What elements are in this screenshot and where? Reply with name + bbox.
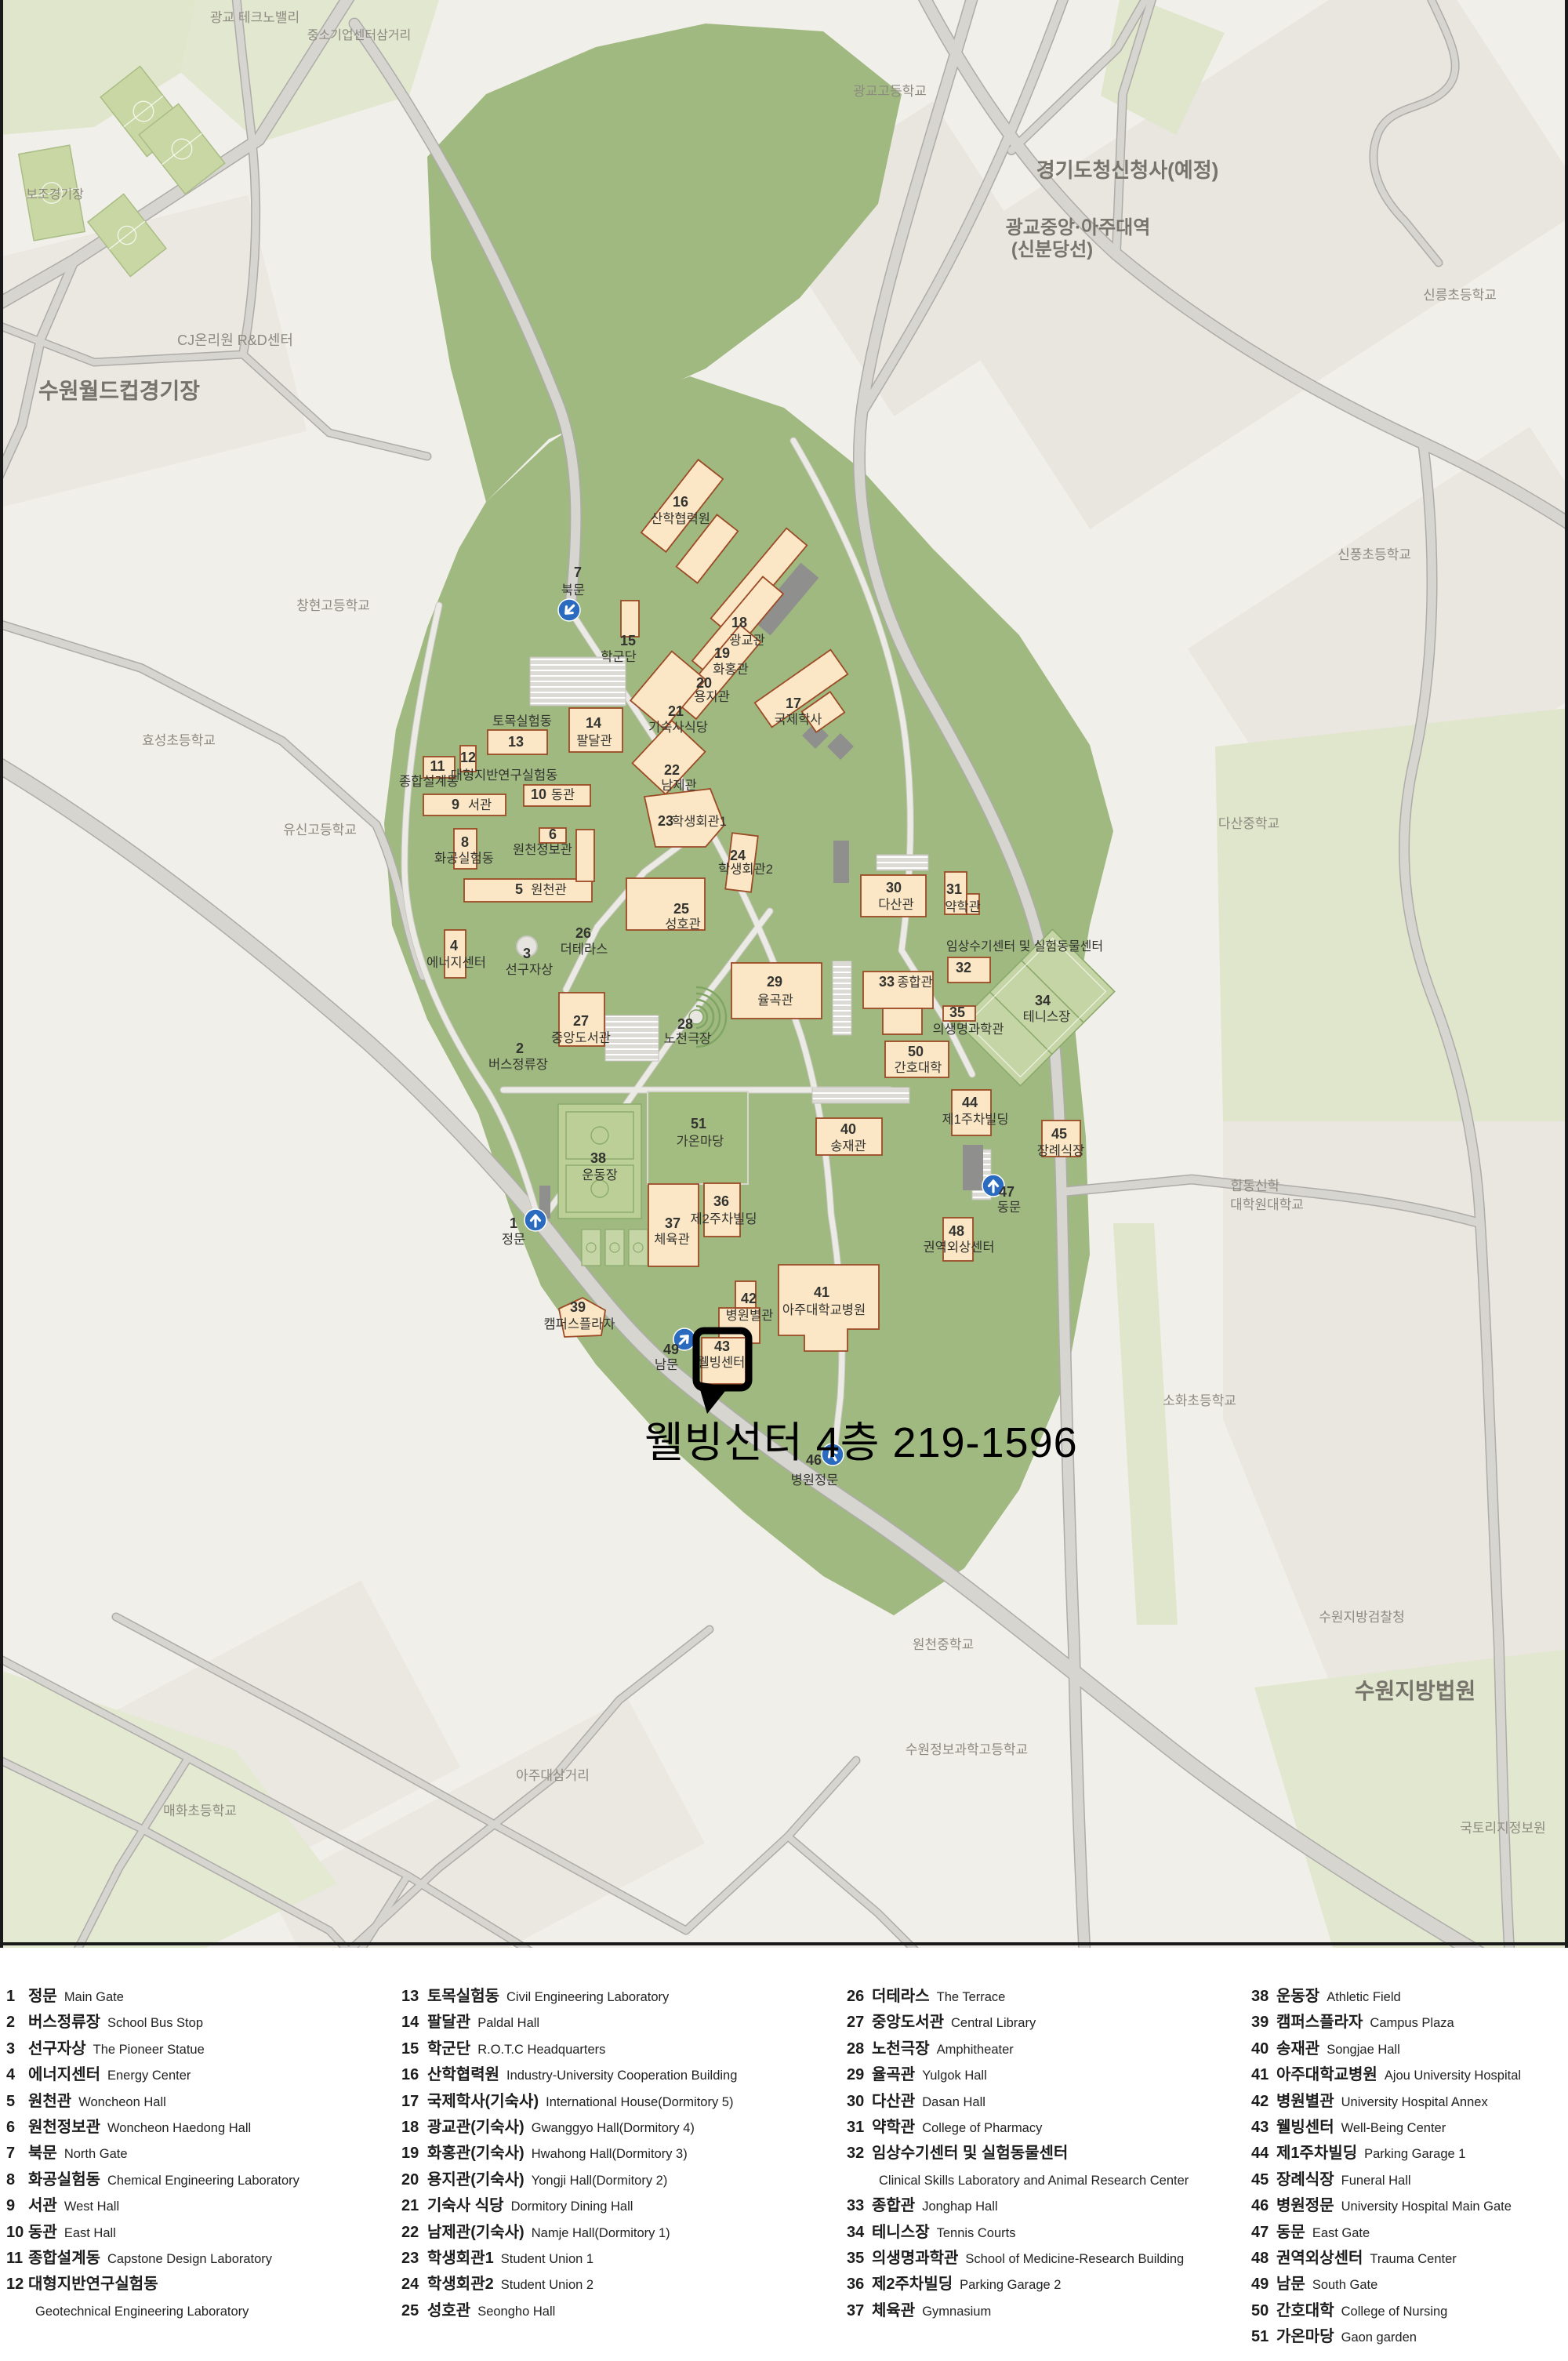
building-name-label: 팔달관 [576, 733, 612, 748]
building-name-label: 대형지반연구실험동 [451, 768, 558, 783]
legend-item-1: 1정문Main Gate [6, 1984, 299, 2010]
legend-item-5: 5원천관Woncheon Hall [6, 2089, 299, 2115]
building-5 [576, 830, 594, 881]
building-number-label: 18 [731, 615, 747, 630]
building-name-label: 동관 [551, 787, 575, 802]
legend-korean-name: 제1주차빌딩 [1276, 2145, 1357, 2162]
legend-korean-name: 동문 [1276, 2224, 1305, 2241]
legend-korean-name: 약학관 [872, 2119, 915, 2136]
area-label: 수원지방법원 [1355, 1679, 1476, 1703]
building-name-label: 기숙사식당 [648, 720, 708, 735]
building-number-label: 51 [691, 1116, 706, 1131]
legend-korean-name: 아주대학교병원 [1276, 2066, 1377, 2083]
legend-korean-name: 기숙사 식당 [427, 2197, 504, 2214]
legend-item-25: 25성호관Seongho Hall [401, 2298, 737, 2324]
area-label: 아주대삼거리 [516, 1768, 590, 1783]
area-label: 효성초등학교 [142, 733, 216, 748]
area-label: 국토리지정보원 [1460, 1821, 1545, 1836]
building-name-label: 율곡관 [757, 993, 793, 1008]
legend-item-18: 18광교관(기숙사)Gwanggyo Hall(Dormitory 4) [401, 2115, 737, 2141]
legend-number: 42 [1251, 2089, 1276, 2115]
map-border-bottom [0, 1942, 1568, 1945]
legend-item-21: 21기숙사 식당Dormitory Dining Hall [401, 2193, 737, 2219]
legend-item-45: 45장례식장Funeral Hall [1251, 2167, 1521, 2193]
basketball-court [629, 1230, 648, 1266]
legend-korean-name: 성호관 [427, 2302, 470, 2319]
legend-english-name: East Hall [64, 2226, 116, 2240]
building-number-label: 45 [1051, 1126, 1067, 1142]
legend-number: 46 [1251, 2193, 1276, 2219]
legend-item-35: 35의생명과학관School of Medicine-Research Buil… [847, 2246, 1189, 2272]
parking-lot [833, 961, 851, 1035]
legend-korean-name: 율곡관 [872, 2066, 915, 2083]
legend-korean-name: 병원별관 [1276, 2093, 1334, 2110]
building-number-label: 26 [575, 925, 591, 941]
area-label: (신분당선) [1011, 239, 1093, 260]
legend-number: 26 [847, 1984, 872, 2010]
legend-item-11: 11종합설계동Capstone Design Laboratory [6, 2246, 299, 2272]
legend-english-name: Namje Hall(Dormitory 1) [532, 2226, 670, 2240]
building-number-label: 17 [786, 696, 801, 711]
legend-english-name: Parking Garage 2 [960, 2278, 1061, 2292]
legend-item-39: 39캠퍼스플라자Campus Plaza [1251, 2010, 1521, 2036]
building-name-label: 노천극장 [664, 1031, 712, 1046]
legend-item-32: 32임상수기센터 및 실험동물센터 [847, 2141, 1189, 2167]
legend-english-name: Energy Center [107, 2069, 191, 2083]
building-number-label: 49 [663, 1342, 679, 1357]
legend-item-8: 8화공실험동Chemical Engineering Laboratory [6, 2167, 299, 2193]
legend-english-name: Main Gate [64, 1990, 124, 2004]
area-label: 다산중학교 [1218, 816, 1279, 831]
building-number-label: 1 [510, 1215, 517, 1231]
legend-english-name: Yongji Hall(Dormitory 2) [532, 2174, 668, 2188]
building-name-label: 장례식장 [1037, 1143, 1085, 1158]
legend-number: 29 [847, 2062, 872, 2088]
legend-english-name: Songjae Hall [1327, 2043, 1400, 2057]
building-33 [883, 1008, 922, 1034]
legend-item-20: 20용지관(기숙사)Yongji Hall(Dormitory 2) [401, 2167, 737, 2193]
building-number-label: 13 [508, 734, 524, 750]
legend-korean-name: 에너지센터 [28, 2066, 100, 2083]
campus-map-page: { "annotation": { "callout_text": "웰빙선터 … [0, 0, 1568, 2361]
legend-english-name: Dormitory Dining Hall [511, 2199, 633, 2214]
area-label: 소화초등학교 [1163, 1393, 1236, 1408]
legend-number: 27 [847, 2010, 872, 2036]
legend-item-28: 28노천극장Amphitheater [847, 2036, 1189, 2062]
legend-item-15: 15학군단R.O.T.C Headquarters [401, 2036, 737, 2062]
legend-english-name: Student Union 1 [501, 2252, 593, 2266]
legend-number: 32 [847, 2141, 872, 2167]
legend-item-wrap: Geotechnical Engineering Laboratory [6, 2298, 299, 2324]
legend-item-22: 22남제관(기숙사)Namje Hall(Dormitory 1) [401, 2220, 737, 2246]
parking-lot [812, 1088, 909, 1103]
legend-item-2: 2버스정류장School Bus Stop [6, 2010, 299, 2036]
area-label: 경기도청신청사(예정) [1036, 158, 1219, 182]
legend-english-name: Athletic Field [1327, 1990, 1400, 2004]
building-name-label: 병원별관 [726, 1308, 774, 1323]
building-name-label: 용지관 [694, 689, 730, 704]
building-number-label: 32 [956, 960, 971, 975]
building-name-label: 운동장 [582, 1168, 618, 1182]
building-name-label: 남문 [655, 1357, 678, 1372]
building-name-label: 원천관 [531, 882, 567, 897]
legend-number: 43 [1251, 2115, 1276, 2141]
legend-english-name: The Pioneer Statue [93, 2043, 205, 2057]
legend-column-1: 1정문Main Gate2버스정류장School Bus Stop3선구자상Th… [6, 1984, 299, 2324]
legend-item-4: 4에너지센터Energy Center [6, 2062, 299, 2088]
building-number-label: 7 [574, 565, 582, 580]
legend-english-name: Trauma Center [1370, 2252, 1456, 2266]
legend-item-3: 3선구자상The Pioneer Statue [6, 2036, 299, 2062]
legend-number: 18 [401, 2115, 427, 2141]
legend-item-50: 50간호대학College of Nursing [1251, 2298, 1521, 2324]
legend-item-27: 27중앙도서관Central Library [847, 2010, 1189, 2036]
building-number-label: 35 [949, 1004, 965, 1020]
legend-korean-name: 캠퍼스플라자 [1276, 2014, 1363, 2031]
building-name-label: 학생회관2 [718, 862, 773, 877]
building-number-label: 3 [523, 946, 531, 961]
legend-korean-name: 학생회관1 [427, 2250, 494, 2267]
legend-item-47: 47동문East Gate [1251, 2220, 1521, 2246]
area-label: 임상수기센터 및 실험동물센터 [946, 939, 1103, 953]
building-name-label: 가온마당 [677, 1134, 724, 1149]
legend-korean-name: 중앙도서관 [872, 2014, 944, 2031]
gray-building [833, 841, 849, 883]
legend-item-40: 40송재관Songjae Hall [1251, 2036, 1521, 2062]
building-name-label: 남제관 [661, 778, 697, 793]
legend-number: 3 [6, 2036, 28, 2062]
legend-item-wrap: Clinical Skills Laboratory and Animal Re… [847, 2167, 1189, 2193]
legend-item-41: 41아주대학교병원Ajou University Hospital [1251, 2062, 1521, 2088]
area-label: 합동신학 [1231, 1179, 1280, 1193]
area-label: 창현고등학교 [296, 598, 370, 613]
legend-number: 33 [847, 2193, 872, 2219]
legend-number: 23 [401, 2246, 427, 2272]
building-name-label: 정문 [502, 1232, 525, 1247]
building-name-label: 서관 [468, 797, 492, 812]
legend-english-name: Ajou University Hospital [1385, 2069, 1521, 2083]
legend-item-17: 17국제학사(기숙사)International House(Dormitory… [401, 2089, 737, 2115]
building-name-label: 학생회관1 [672, 814, 727, 829]
legend-number: 31 [847, 2115, 872, 2141]
building-number-label: 29 [767, 974, 782, 990]
building-number-label: 5 [515, 881, 523, 897]
legend-korean-name: 종합관 [872, 2197, 915, 2214]
area-label: 매화초등학교 [163, 1803, 237, 1818]
legend-item-19: 19화홍관(기숙사)Hwahong Hall(Dormitory 3) [401, 2141, 737, 2167]
legend-number: 1 [6, 1984, 28, 2010]
legend-item-26: 26더테라스The Terrace [847, 1984, 1189, 2010]
legend-number: 4 [6, 2062, 28, 2088]
legend-item-13: 13토목실험동Civil Engineering Laboratory [401, 1984, 737, 2010]
building-number-label: 36 [713, 1193, 729, 1209]
legend-number: 2 [6, 2010, 28, 2036]
legend-number: 19 [401, 2141, 427, 2167]
basketball-court [605, 1230, 624, 1266]
area-label: 광교 테크노밸리 [210, 10, 299, 25]
legend-number: 45 [1251, 2167, 1276, 2193]
building-number-label: 41 [814, 1284, 829, 1300]
building-number-label: 42 [741, 1291, 757, 1306]
legend-korean-name: 장례식장 [1276, 2171, 1334, 2188]
legend-number: 12 [6, 2272, 28, 2297]
legend-english-name: Funeral Hall [1341, 2174, 1411, 2188]
map-border-left [0, 0, 3, 1948]
legend-number: 40 [1251, 2036, 1276, 2062]
building-name-label: 화홍관 [713, 662, 749, 677]
legend-english-name: West Hall [64, 2199, 119, 2214]
legend-korean-name: 버스정류장 [28, 2014, 100, 2031]
legend-number: 9 [6, 2193, 28, 2219]
legend-number: 44 [1251, 2141, 1276, 2167]
building-number-label: 22 [664, 762, 680, 778]
legend-number: 38 [1251, 1984, 1276, 2010]
gate-icon-main-gate [524, 1209, 546, 1231]
building-number-label: 11 [430, 758, 445, 774]
legend-number: 22 [401, 2220, 427, 2246]
legend-number: 14 [401, 2010, 427, 2036]
building-number-label: 4 [450, 938, 458, 953]
legend-item-46: 46병원정문University Hospital Main Gate [1251, 2193, 1521, 2219]
legend-number: 6 [6, 2115, 28, 2141]
legend-number: 10 [6, 2220, 28, 2246]
area-label: 수원지방검찰청 [1319, 1610, 1404, 1625]
legend-number: 47 [1251, 2220, 1276, 2246]
legend-number: 41 [1251, 2062, 1276, 2088]
building-number-label: 24 [730, 848, 746, 863]
legend-number: 8 [6, 2167, 28, 2193]
building-number-label: 9 [452, 797, 459, 812]
legend-english-name: Jonghap Hall [922, 2199, 997, 2214]
legend-number: 24 [401, 2272, 427, 2297]
legend-number: 30 [847, 2089, 872, 2115]
building-name-label: 권역외상센터 [923, 1240, 994, 1255]
gate-icon-north-gate [558, 599, 580, 621]
map-patch [1215, 707, 1568, 1121]
building-number-label: 48 [949, 1223, 964, 1239]
legend-english-name: South Gate [1312, 2278, 1377, 2292]
building-name-label: 더테라스 [561, 942, 608, 957]
legend-english-name: School Bus Stop [107, 2016, 203, 2030]
building-36 [704, 1183, 740, 1237]
campus-map-svg: 16산학협력원7북문15학군단18광교관19화홍관20용지관21기숙사식당22남… [0, 0, 1568, 1948]
building-name-label: 선구자상 [506, 962, 554, 977]
legend-number: 35 [847, 2246, 872, 2272]
building-number-label: 47 [999, 1184, 1014, 1200]
building-name-label: 종합설계동 [399, 774, 459, 789]
legend-english-name: University Hospital Annex [1341, 2095, 1488, 2109]
parking-lot [530, 657, 626, 706]
building-name-label: 에너지센터 [426, 955, 486, 970]
legend-item-6: 6원천정보관Woncheon Haedong Hall [6, 2115, 299, 2141]
legend-item-34: 34테니스장Tennis Courts [847, 2220, 1189, 2246]
legend-korean-name: 남문 [1276, 2276, 1305, 2293]
map-border-right [1565, 0, 1568, 1948]
building-number-label: 28 [677, 1016, 693, 1032]
parking-lot [605, 1015, 659, 1061]
legend-english-name: College of Pharmacy [922, 2121, 1042, 2135]
building-number-label: 43 [714, 1339, 730, 1354]
legend-english-name: Central Library [951, 2016, 1036, 2030]
building-name-label: 의생명과학관 [932, 1022, 1004, 1037]
building-name-label: 다산관 [878, 897, 914, 912]
legend-english-name: Tennis Courts [937, 2226, 1016, 2240]
building-number-label: 10 [531, 786, 546, 802]
building-name-label: 성호관 [665, 917, 701, 932]
legend-korean-name: 팔달관 [427, 2014, 470, 2031]
building-name-label: 국제학사 [775, 712, 822, 727]
legend-number: 13 [401, 1984, 427, 2010]
legend-number: 21 [401, 2193, 427, 2219]
legend-korean-name: 대형지반연구실험동 [28, 2276, 158, 2293]
legend-number: 50 [1251, 2298, 1276, 2324]
legend-korean-name: 권역외상센터 [1276, 2250, 1363, 2267]
building-name-label: 제2주차빌딩 [690, 1211, 757, 1226]
legend-number: 25 [401, 2298, 427, 2324]
legend-number: 34 [847, 2220, 872, 2246]
building-name-label: 광교관 [729, 633, 765, 648]
legend-number: 16 [401, 2062, 427, 2088]
building-number-label: 33 [879, 974, 895, 990]
area-label: 광교고등학교 [853, 84, 927, 99]
legend-english-name: University Hospital Main Gate [1341, 2199, 1512, 2214]
legend-item-31: 31약학관College of Pharmacy [847, 2115, 1189, 2141]
legend-english-name: Woncheon Haedong Hall [107, 2121, 251, 2135]
parking-lot [877, 855, 928, 870]
legend-korean-name: 원천정보관 [28, 2119, 100, 2136]
legend-item-14: 14팔달관Paldal Hall [401, 2010, 737, 2036]
legend-english-name: College of Nursing [1341, 2305, 1448, 2319]
building-number-label: 34 [1035, 993, 1051, 1008]
building-number-label: 37 [665, 1215, 681, 1231]
legend-item-33: 33종합관Jonghap Hall [847, 2193, 1189, 2219]
legend-korean-name: 남제관(기숙사) [427, 2224, 524, 2241]
legend-english-name: International House(Dormitory 5) [546, 2095, 733, 2109]
building-name-label: 산학협력원 [651, 511, 710, 526]
legend-korean-name: 병원정문 [1276, 2197, 1334, 2214]
legend-english-name: The Terrace [937, 1990, 1006, 2004]
legend-korean-name: 국제학사(기숙사) [427, 2093, 539, 2110]
legend-number: 49 [1251, 2272, 1276, 2297]
legend-english-name: School of Medicine-Research Building [965, 2252, 1184, 2266]
building-number-label: 16 [673, 494, 688, 510]
legend-english-name: Gaon garden [1341, 2330, 1417, 2345]
building-name-label: 송재관 [830, 1139, 866, 1153]
legend-column-3: 26더테라스The Terrace27중앙도서관Central Library2… [847, 1984, 1189, 2324]
building-number-label: 38 [590, 1150, 606, 1166]
building-name-label: 중앙도서관 [551, 1030, 611, 1045]
building-number-label: 30 [886, 880, 902, 895]
area-label: 원천중학교 [913, 1637, 974, 1652]
legend-item-7: 7북문North Gate [6, 2141, 299, 2167]
legend-item-49: 49남문South Gate [1251, 2272, 1521, 2297]
map-canvas: 16산학협력원7북문15학군단18광교관19화홍관20용지관21기숙사식당22남… [0, 0, 1568, 1948]
legend-english-name: Yulgok Hall [922, 2069, 987, 2083]
legend-item-43: 43웰빙센터Well-Being Center [1251, 2115, 1521, 2141]
legend-item-48: 48권역외상센터Trauma Center [1251, 2246, 1521, 2272]
legend-english-name: Parking Garage 1 [1364, 2147, 1465, 2161]
building-number-label: 20 [696, 675, 712, 691]
building-name-label: 종합관 [897, 975, 933, 990]
building-5 [464, 879, 592, 902]
legend-item-9: 9서관West Hall [6, 2193, 299, 2219]
legend-korean-name: 정문 [28, 1988, 57, 2005]
annotation-text: 웰빙선터 4층 219-1596 [644, 1419, 1078, 1466]
building-name-label: 화공실험동 [434, 851, 494, 866]
area-label: CJ온리원 R&D센터 [177, 332, 293, 348]
legend-item-42: 42병원별관University Hospital Annex [1251, 2089, 1521, 2115]
legend-korean-name: 더테라스 [872, 1988, 930, 2005]
legend-item-38: 38운동장Athletic Field [1251, 1984, 1521, 2010]
legend-english-name: Well-Being Center [1341, 2121, 1446, 2135]
building-number-label: 15 [620, 633, 636, 648]
legend-item-12: 12대형지반연구실험동 [6, 2272, 299, 2297]
building-number-label: 40 [840, 1121, 856, 1137]
legend-item-30: 30다산관Dasan Hall [847, 2089, 1189, 2115]
building-number-label: 8 [461, 834, 469, 850]
area-label: 신릉초등학교 [1423, 288, 1497, 303]
legend-item-10: 10동관East Hall [6, 2220, 299, 2246]
area-label: 수원월드컵경기장 [38, 379, 200, 403]
legend-korean-name: 송재관 [1276, 2040, 1319, 2058]
building-number-label: 39 [570, 1299, 586, 1315]
legend-english-name: R.O.T.C Headquarters [477, 2043, 605, 2057]
gray-building [963, 1145, 983, 1190]
legend-number: 20 [401, 2167, 427, 2193]
legend-english-name: Civil Engineering Laboratory [506, 1990, 669, 2004]
legend-english-name: Gymnasium [922, 2305, 991, 2319]
legend-number: 7 [6, 2141, 28, 2167]
legend-item-29: 29율곡관Yulgok Hall [847, 2062, 1189, 2088]
building-name-label: 웰빙센터 [698, 1355, 746, 1370]
legend-english-name: Gwanggyo Hall(Dormitory 4) [532, 2121, 695, 2135]
legend-korean-name: 광교관(기숙사) [427, 2119, 524, 2136]
legend-korean-name: 제2주차빌딩 [872, 2276, 953, 2293]
building-number-label: 2 [516, 1041, 524, 1056]
building-number-label: 12 [460, 750, 476, 765]
building-15 [621, 601, 639, 637]
building-name-label: 제1주차빌딩 [942, 1112, 1008, 1127]
legend-item-24: 24학생회관2Student Union 2 [401, 2272, 737, 2297]
legend-english-name: Student Union 2 [501, 2278, 593, 2292]
legend-korean-name: 북문 [28, 2145, 57, 2162]
legend-number: 36 [847, 2272, 872, 2297]
building-number-label: 14 [586, 715, 601, 731]
building-name-label: 아주대학교병원 [782, 1302, 866, 1317]
building-29 [731, 963, 822, 1019]
legend-korean-name: 운동장 [1276, 1988, 1319, 2005]
legend-korean-name: 다산관 [872, 2093, 915, 2110]
building-number-label: 50 [908, 1044, 924, 1059]
legend-korean-name: 선구자상 [28, 2040, 86, 2058]
legend-number: 39 [1251, 2010, 1276, 2036]
legend-number: 37 [847, 2298, 872, 2324]
legend-korean-name: 학생회관2 [427, 2276, 494, 2293]
legend-korean-name: 원천관 [28, 2093, 71, 2110]
building-number-label: 21 [668, 703, 684, 719]
building-name-label: 버스정류장 [488, 1057, 548, 1072]
legend-korean-name: 간호대학 [1276, 2302, 1334, 2319]
building-name-label: 체육관 [654, 1232, 690, 1247]
legend-english-name: Woncheon Hall [78, 2095, 166, 2109]
legend-number: 51 [1251, 2324, 1276, 2350]
building-number-label: 6 [549, 826, 557, 842]
legend-korean-name: 노천극장 [872, 2040, 930, 2058]
area-label: 중소기업센터삼거리 [307, 28, 411, 42]
building-name-label: 토목실험동 [492, 714, 552, 728]
legend-english-name: Industry-University Cooperation Building [506, 2069, 737, 2083]
legend-number: 11 [6, 2246, 28, 2272]
